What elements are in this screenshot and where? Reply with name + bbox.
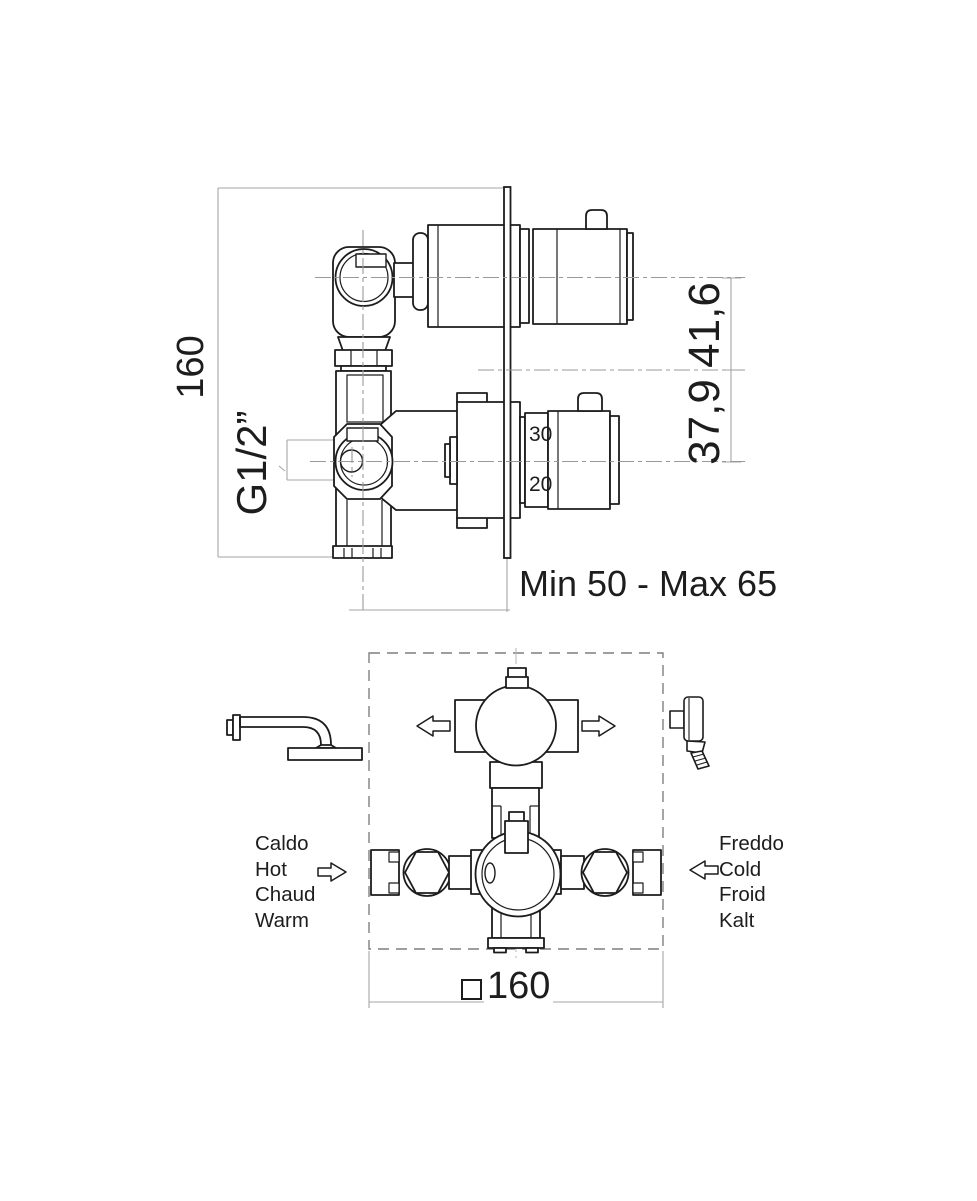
diverter-left-arrow-icon bbox=[417, 716, 450, 736]
diverter-knob-front bbox=[476, 686, 556, 766]
thread-size-label: G1/2” bbox=[230, 398, 274, 528]
cold-label-en: Cold bbox=[719, 857, 784, 883]
hot-label-de: Warm bbox=[255, 908, 315, 934]
valve-body-front bbox=[371, 668, 661, 953]
diverter-right-arrow-icon bbox=[582, 716, 615, 736]
width-dimension-label: 160 bbox=[484, 966, 553, 1006]
rain-shower-icon bbox=[227, 715, 362, 760]
side-view bbox=[218, 187, 745, 612]
hot-inlet-labels: Caldo Hot Chaud Warm bbox=[255, 831, 315, 933]
technical-drawing-page: 160 G1/2” 41,6 37,9 30 20 Min 50 - Max 6… bbox=[0, 0, 977, 1201]
hot-label-en: Hot bbox=[255, 857, 315, 883]
valve-body-side bbox=[333, 210, 633, 558]
hot-label-fr: Chaud bbox=[255, 882, 315, 908]
hand-shower-icon bbox=[670, 697, 709, 769]
dial-tick-30: 30 bbox=[529, 424, 552, 445]
depth-range-label: Min 50 - Max 65 bbox=[519, 565, 777, 603]
dial-tick-20: 20 bbox=[529, 474, 552, 495]
cold-flow-arrow-icon bbox=[690, 861, 718, 879]
wall-plate bbox=[504, 187, 511, 558]
height-dimension-label: 160 bbox=[171, 317, 211, 417]
front-view bbox=[227, 648, 718, 1008]
cold-label-it: Freddo bbox=[719, 831, 784, 857]
technical-drawing-canvas bbox=[0, 0, 977, 1201]
lower-offset-dimension-label: 37,9 bbox=[682, 372, 728, 472]
cold-label-de: Kalt bbox=[719, 908, 784, 934]
cold-inlet-labels: Freddo Cold Froid Kalt bbox=[719, 831, 784, 933]
hot-label-it: Caldo bbox=[255, 831, 315, 857]
upper-offset-dimension-label: 41,6 bbox=[682, 275, 728, 375]
temperature-handle-side bbox=[548, 411, 610, 509]
cold-label-fr: Froid bbox=[719, 882, 784, 908]
diverter-handle-side bbox=[533, 229, 627, 324]
square-dimension-icon bbox=[461, 979, 482, 1000]
cold-inlet-pipe bbox=[546, 849, 661, 896]
hot-flow-arrow-icon bbox=[318, 863, 346, 881]
hot-inlet-pipe bbox=[371, 849, 486, 896]
